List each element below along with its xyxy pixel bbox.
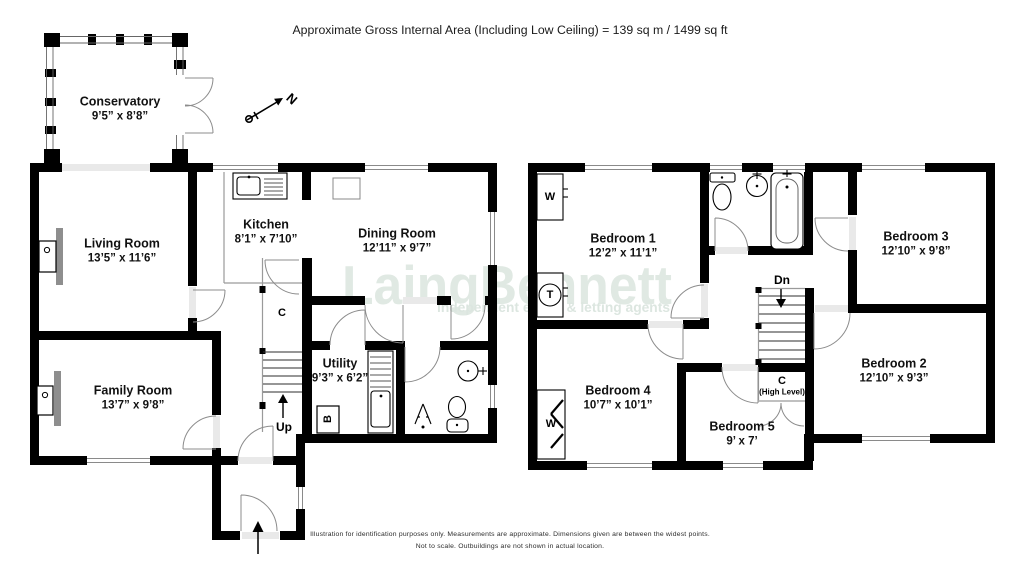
boiler-label: B	[322, 415, 334, 423]
kitchen-sink	[233, 173, 287, 199]
stairs-ground	[263, 352, 302, 418]
cupboard-note-label: (High Level)	[759, 388, 805, 397]
room-label-living-room: Living Room 13’5” x 11’6”	[84, 235, 160, 266]
room-label-kitchen: Kitchen 8’1” x 7’10”	[235, 216, 298, 247]
up-arrow-icon	[278, 394, 288, 418]
stairs-up-label: Up	[276, 420, 292, 434]
cupboard-label-ground: C	[278, 307, 286, 319]
room-label-bedroom-4: Bedroom 4 10’7” x 10’1”	[583, 382, 652, 413]
serving-hatch	[333, 178, 360, 199]
stairs-down-label: Dn	[774, 273, 790, 287]
floorplan-canvas: LaingBennett independent estate & lettin…	[0, 0, 1020, 570]
wc-basin	[458, 361, 487, 381]
tank-label: T	[547, 289, 554, 301]
shower-head-icon	[415, 404, 431, 429]
stairs-first	[759, 289, 805, 359]
wardrobe-label-bed4: W	[546, 418, 556, 430]
wc-toilet	[447, 397, 468, 433]
room-label-dining-room: Dining Room 12’11” x 9’7”	[358, 225, 436, 256]
fireplace-living	[39, 228, 63, 285]
floorplan-page: Approximate Gross Internal Area (Includi…	[0, 0, 1020, 570]
room-label-family-room: Family Room 13’7” x 9’8”	[94, 382, 173, 413]
room-label-bedroom-2: Bedroom 2 12’10” x 9’3”	[859, 355, 928, 386]
north-label: N	[283, 90, 300, 107]
utility-sink	[368, 351, 393, 433]
footer-line-1: Illustration for identification purposes…	[0, 531, 1020, 538]
north-arrow-icon: N	[246, 90, 301, 122]
watermark: LaingBennett independent estate & lettin…	[342, 254, 672, 316]
bathroom-bath	[771, 170, 803, 249]
room-label-bedroom-5: Bedroom 5 9’ x 7’	[709, 418, 774, 449]
fireplace-family	[37, 371, 61, 426]
room-label-bedroom-3: Bedroom 3 12’10” x 9’8”	[881, 228, 950, 259]
thresholds	[62, 164, 856, 539]
room-label-bedroom-1: Bedroom 1 12’2” x 11’1”	[589, 230, 657, 261]
bathroom-toilet	[710, 173, 735, 210]
room-label-conservatory: Conservatory 9’5” x 8’8”	[80, 93, 161, 124]
footer-line-2: Not to scale. Outbuildings are not shown…	[0, 543, 1020, 550]
room-label-utility: Utility 9’3” x 6’2”	[312, 355, 368, 386]
wardrobe-label-bed1: W	[545, 191, 555, 203]
cupboard-label-first: C	[778, 375, 786, 387]
bathroom-basin	[747, 170, 768, 197]
